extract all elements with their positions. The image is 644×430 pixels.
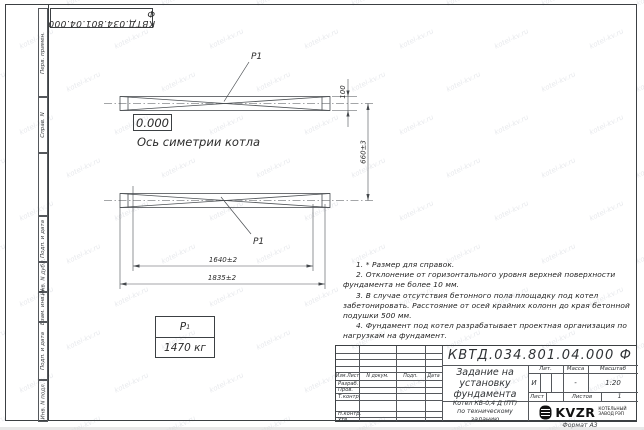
tb-doc-number: КВТД.034.801.04.000 Ф (442, 346, 638, 365)
tb-product-line2: по техническому заданию (442, 408, 528, 424)
dim-1640-text: 1640±2 (209, 256, 238, 264)
weight-value: 1470 кг (164, 342, 206, 354)
kvzr-caption-line2: ЗАВОД РЭП (598, 412, 626, 417)
note-4: 4. Фундамент под котел разрабатывает про… (343, 321, 633, 341)
level-mark-text: 0.000 (136, 116, 169, 130)
leader-p1-lower (221, 197, 251, 234)
tb-line (425, 346, 426, 421)
tb-logo: KVZR КОТЕЛЬНЫЙ ЗАВОД РЭП (528, 401, 638, 423)
tb-line (359, 346, 360, 421)
kvzr-logo-text: KVZR (555, 405, 595, 420)
drawing-sheet: kotel-kv.rukotel-kv.rukotel-kv.rukotel-k… (0, 0, 644, 430)
tb-lit-header: Лит. (528, 365, 563, 373)
tb-line (540, 373, 541, 392)
dim-1835-text: 1835±2 (208, 274, 237, 282)
dim-100-text: 100 (339, 85, 347, 99)
weight-value-cell: 1470 кг (156, 338, 214, 358)
note-2: 2. Отклонение от горизонтального уровня … (343, 270, 633, 290)
tb-line (336, 353, 442, 354)
dim-660-text: 660±3 (360, 140, 368, 164)
tb-title: Задание на установку фундамента (442, 365, 528, 401)
tb-lit-value: И (528, 373, 540, 392)
note-3: 3. В случае отсутствия бетонного пола пл… (343, 291, 633, 322)
tb-mass-value: - (563, 373, 588, 392)
position-label-lower: P1 (253, 237, 264, 247)
tb-row-utv: Утв. (336, 417, 359, 423)
tb-col-data: Дата (425, 372, 442, 380)
tb-line (546, 392, 547, 401)
tb-line (336, 359, 442, 360)
tb-line (336, 366, 442, 367)
tb-sheet-label: Лист (528, 392, 546, 401)
tb-product: Котел КВ-0,4 Д (ПТ) по техническому зада… (442, 401, 528, 423)
note-1: 1. * Размер для справок. (343, 260, 633, 270)
tb-col-izm-list: Изм.Лист (336, 372, 359, 380)
axis-of-symmetry-label: Ось симетрии котла (137, 135, 260, 149)
tb-mass-header: Масса (563, 365, 588, 373)
tb-line (551, 373, 552, 392)
weight-symbol-sub: 1 (186, 323, 190, 331)
tb-col-podp: Подп. (396, 372, 425, 380)
leader-p1-upper (224, 62, 249, 102)
tb-scale-header: Масштаб (588, 365, 638, 373)
weight-symbol-cell: P1 (156, 317, 214, 338)
weight-table: P1 1470 кг (155, 316, 215, 358)
tb-sheets-value: 1 (601, 392, 638, 401)
tb-line (396, 346, 397, 421)
tb-col-ndokum: N докум. (359, 372, 396, 380)
tb-line (336, 400, 442, 401)
kvzr-logo-caption: КОТЕЛЬНЫЙ ЗАВОД РЭП (598, 407, 626, 417)
tb-scale-value: 1:20 (588, 373, 638, 392)
kvzr-logo-icon (539, 405, 552, 420)
position-label-upper: P1 (251, 52, 262, 62)
tb-row-razrab: Разраб. (336, 380, 359, 387)
level-mark: 0.000 (133, 114, 172, 131)
tb-row-tkontr: Т.контр. (336, 393, 359, 400)
tb-product-line1: Котел КВ-0,4 Д (ПТ) (453, 400, 517, 408)
title-block: КВТД.034.801.04.000 Ф Изм.Лист N докум. … (335, 345, 637, 422)
technical-notes: 1. * Размер для справок. 2. Отклонение о… (343, 260, 633, 342)
tb-sheets-label: Листов (563, 392, 601, 401)
